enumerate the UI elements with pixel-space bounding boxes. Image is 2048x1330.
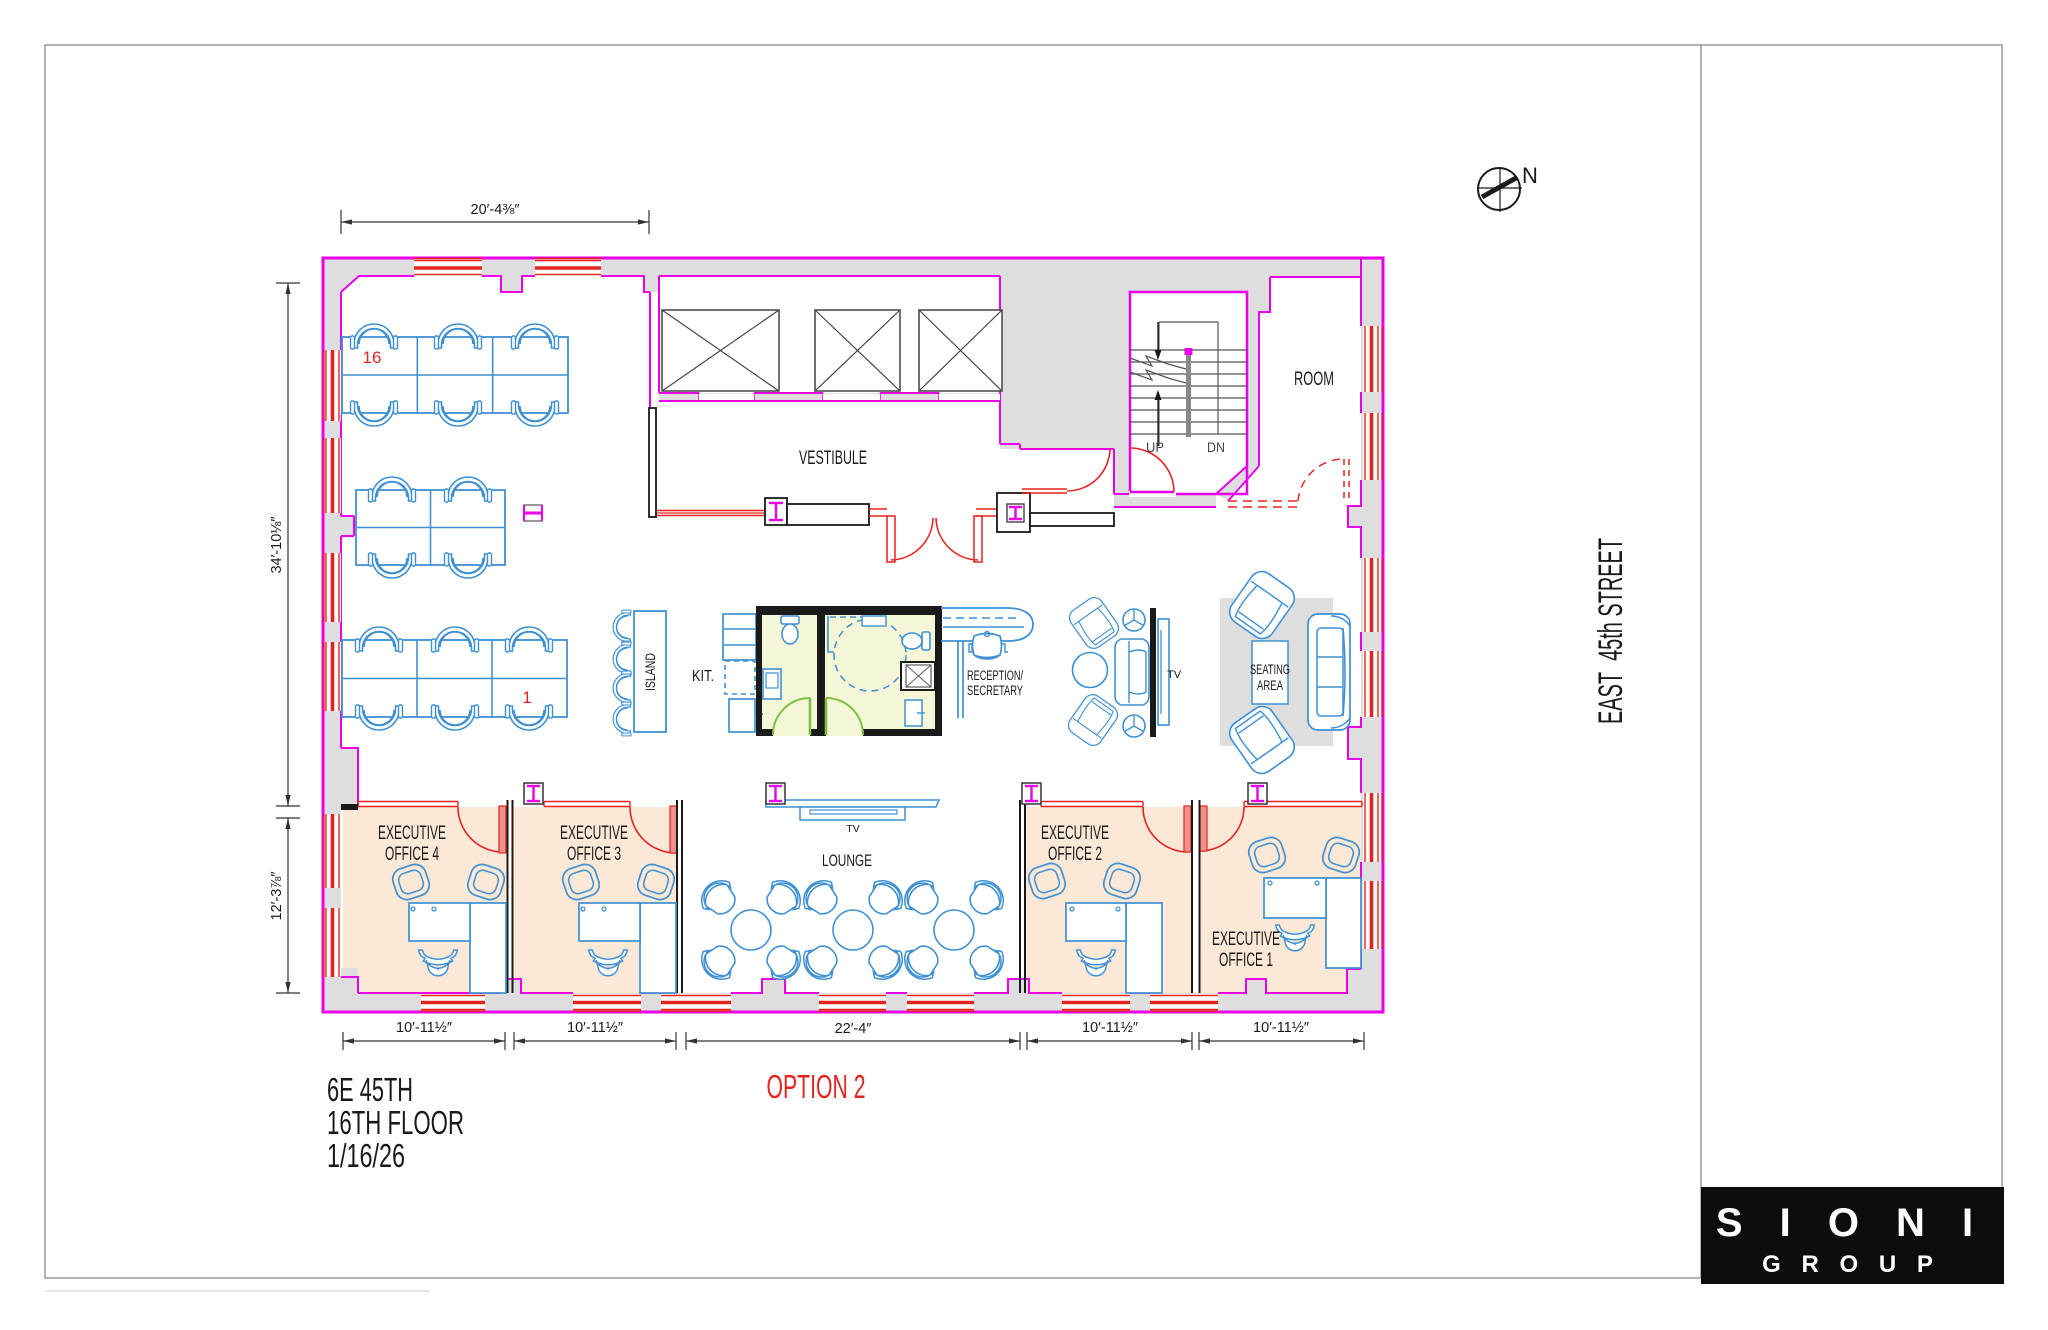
svg-text:KIT.: KIT. [692,668,714,685]
svg-text:AREA: AREA [1257,678,1283,693]
svg-text:16TH FLOOR: 16TH FLOOR [327,1104,464,1141]
svg-text:UP: UP [1146,439,1164,455]
svg-text:22′-4″: 22′-4″ [835,1021,872,1037]
svg-text:20′-4⅜″: 20′-4⅜″ [471,202,520,218]
svg-text:EXECUTIVE: EXECUTIVE [560,823,628,844]
svg-text:1/16/26: 1/16/26 [327,1137,405,1174]
svg-text:10′-11½″: 10′-11½″ [1082,1020,1138,1036]
svg-text:6E 45TH: 6E 45TH [327,1071,413,1108]
svg-text:N: N [1522,163,1538,188]
svg-text:VESTIBULE: VESTIBULE [799,448,867,469]
svg-text:EAST 45th STREET: EAST 45th STREET [1592,538,1630,724]
svg-text:10′-11½″: 10′-11½″ [567,1020,623,1036]
svg-text:SECRETARY: SECRETARY [967,683,1023,698]
svg-text:10′-11½″: 10′-11½″ [396,1020,452,1036]
svg-text:EXECUTIVE: EXECUTIVE [1212,929,1280,950]
svg-text:LOUNGE: LOUNGE [822,852,872,870]
svg-text:DN: DN [1207,439,1225,455]
svg-text:G R O U P: G R O U P [1762,1251,1940,1278]
svg-text:ISLAND: ISLAND [643,653,658,691]
svg-text:EXECUTIVE: EXECUTIVE [378,823,446,844]
svg-text:OFFICE 2: OFFICE 2 [1048,844,1102,865]
svg-text:1: 1 [522,688,531,707]
svg-text:12′-3⅞″: 12′-3⅞″ [269,872,285,921]
svg-text:OFFICE 1: OFFICE 1 [1219,950,1273,971]
svg-text:OFFICE 3: OFFICE 3 [567,844,621,865]
svg-text:34′-10⅛″: 34′-10⅛″ [269,516,285,573]
svg-text:S I O N I: S I O N I [1716,1201,1986,1245]
svg-text:16: 16 [363,348,382,367]
svg-text:OPTION 2: OPTION 2 [767,1068,866,1105]
svg-text:TV: TV [1167,669,1182,681]
svg-text:ROOM: ROOM [1294,369,1334,390]
svg-text:TV: TV [846,823,859,835]
svg-text:OFFICE 4: OFFICE 4 [385,844,439,865]
svg-text:10′-11½″: 10′-11½″ [1253,1020,1309,1036]
svg-text:SEATING: SEATING [1250,662,1290,677]
svg-text:EXECUTIVE: EXECUTIVE [1041,823,1109,844]
svg-text:RECEPTION/: RECEPTION/ [967,668,1023,683]
